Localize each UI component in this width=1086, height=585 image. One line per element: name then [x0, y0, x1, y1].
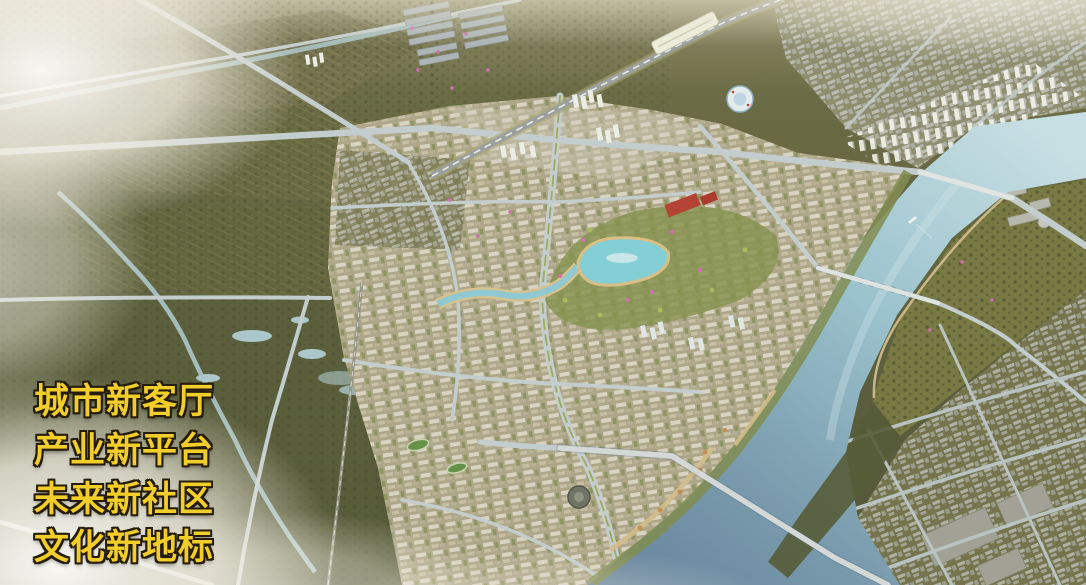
slogan-city-living-room: 城市新客厅 — [34, 378, 214, 427]
slogan-industry-platform: 产业新平台 — [34, 427, 214, 476]
slogan-culture-landmark: 文化新地标 — [34, 524, 214, 573]
slogan-list: 城市新客厅 产业新平台 未来新社区 文化新地标 — [34, 378, 214, 573]
aerial-masterplan-poster: 城市新客厅 产业新平台 未来新社区 文化新地标 — [0, 0, 1086, 585]
slogan-future-community: 未来新社区 — [34, 476, 214, 525]
